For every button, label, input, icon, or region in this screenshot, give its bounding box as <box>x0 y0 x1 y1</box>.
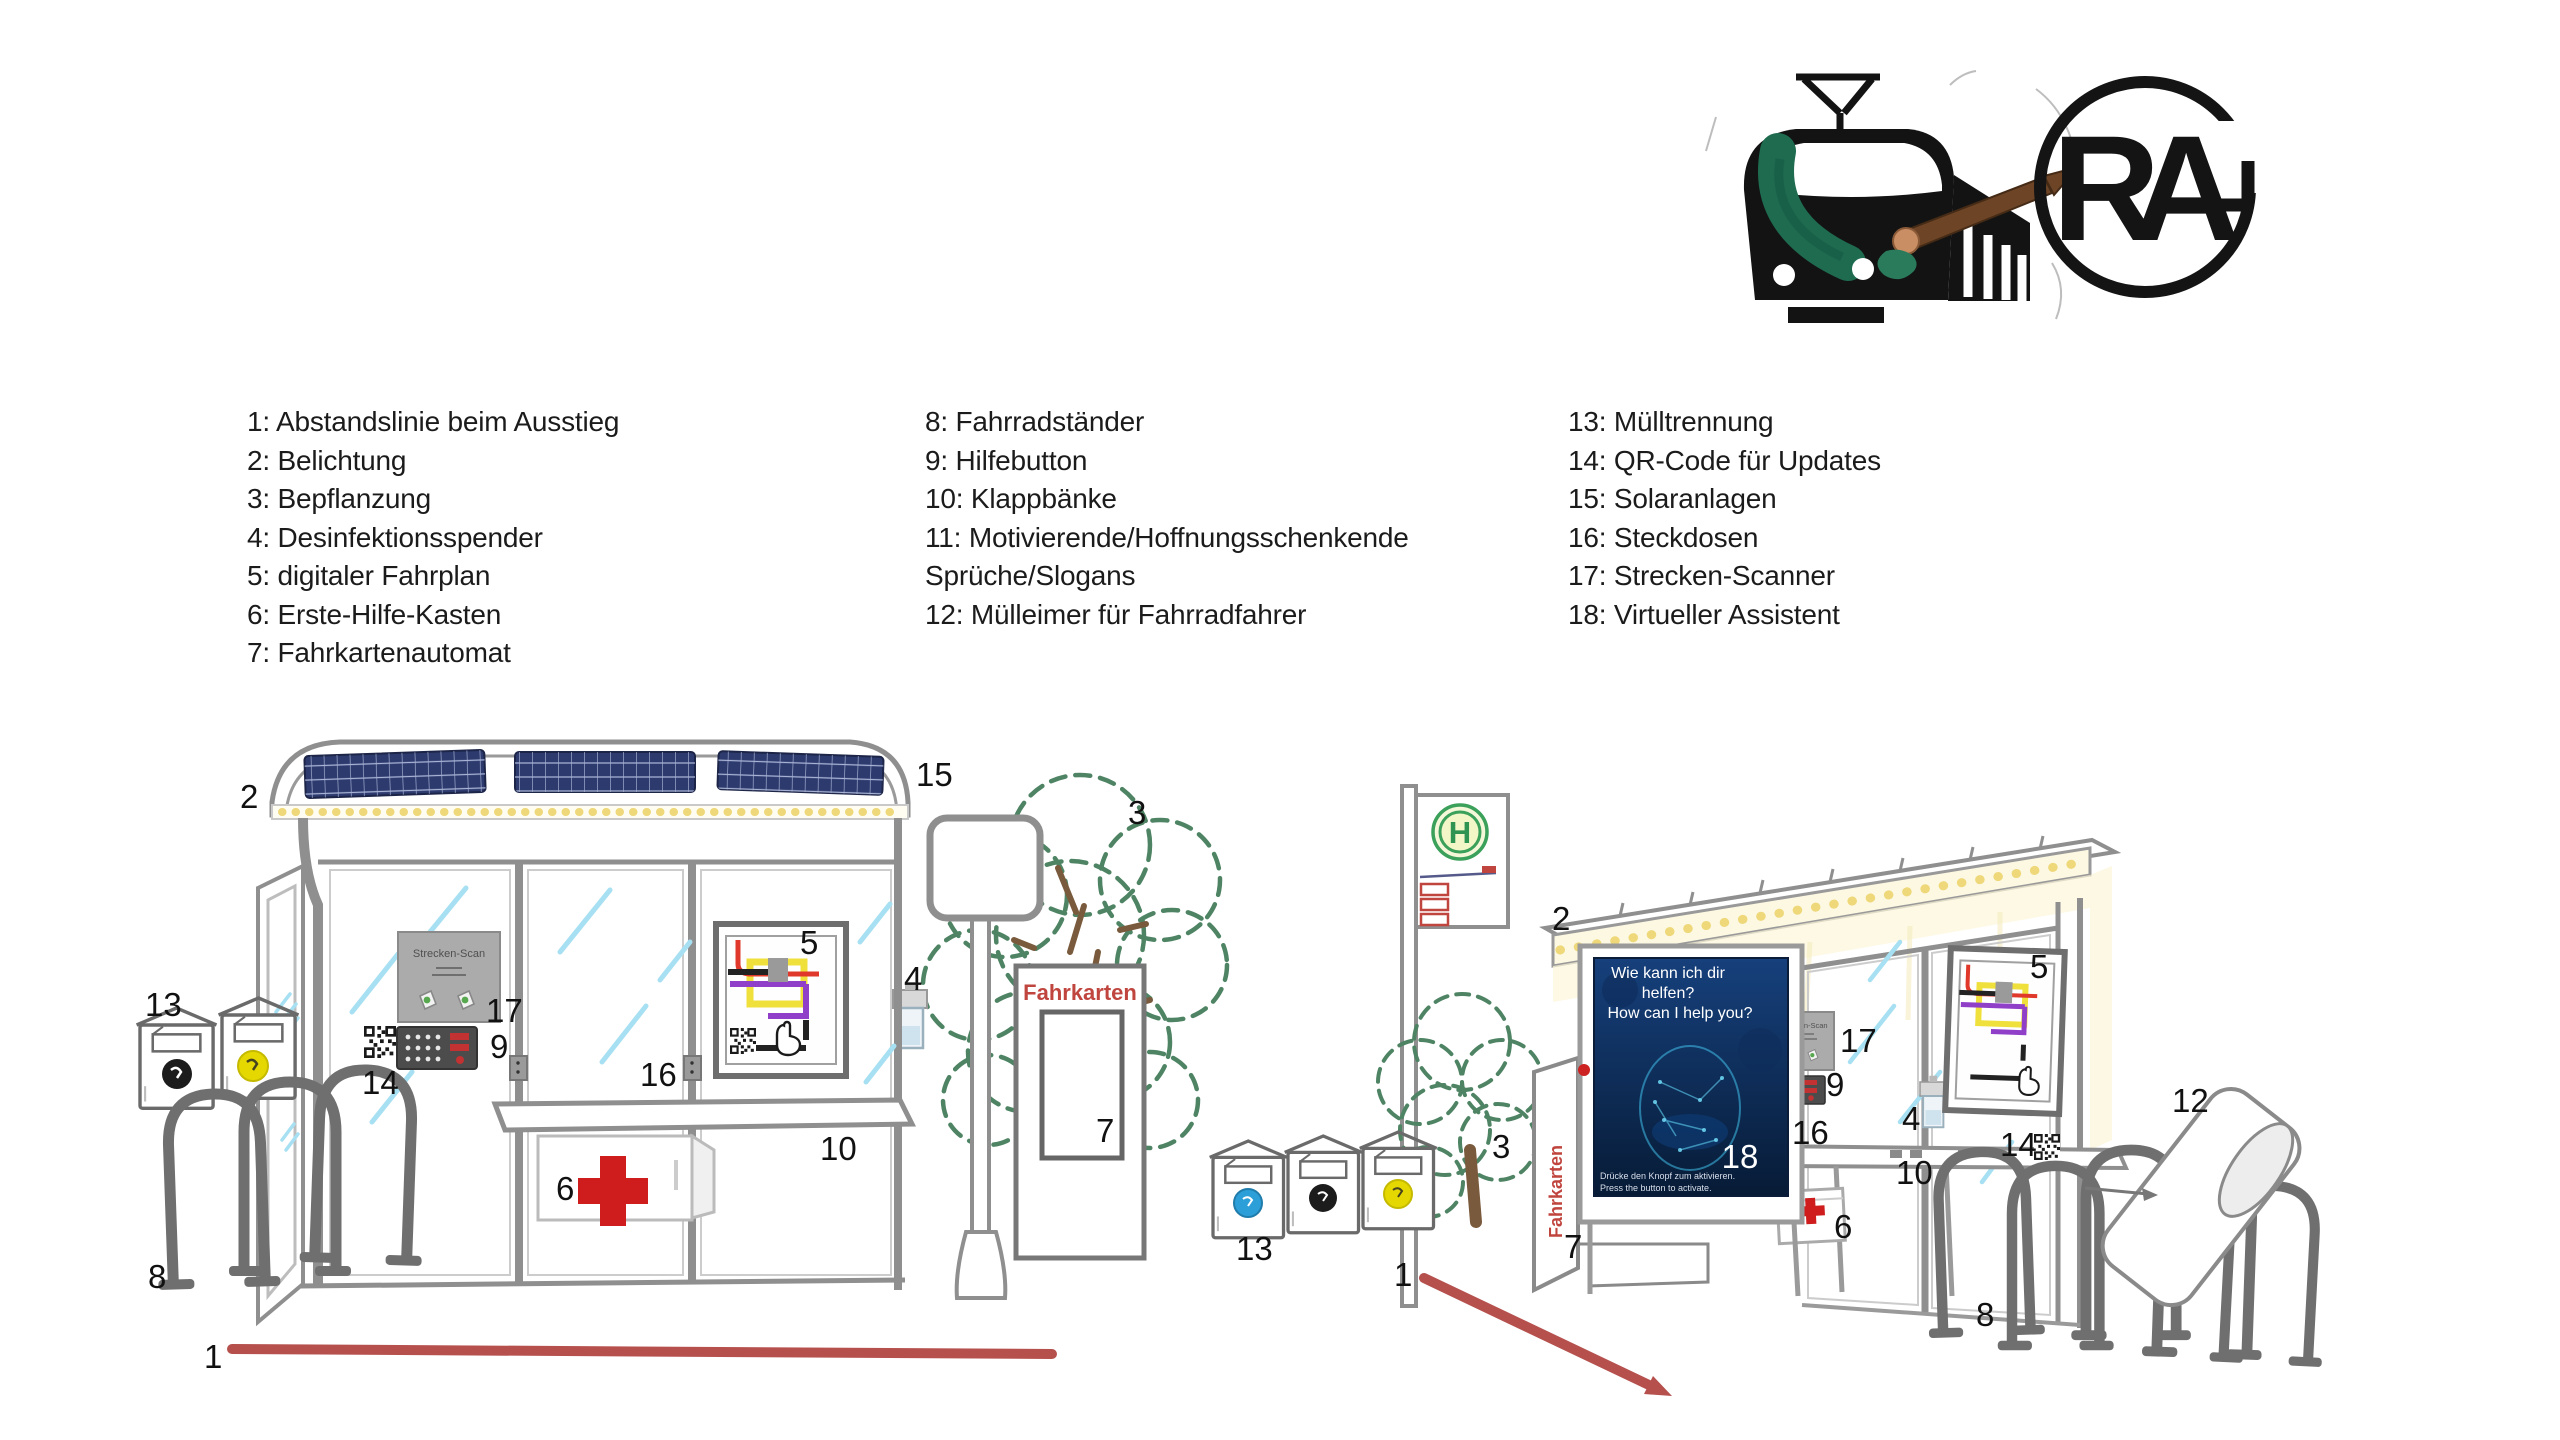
ticket-machine-left-label: Fahrkarten <box>1023 980 1137 1005</box>
digital-timetable-left <box>716 924 846 1076</box>
assistant-text-line2: helfen? <box>1642 985 1695 1002</box>
callout-bike-racks: 8 <box>1976 1296 1994 1333</box>
callout-planting: 3 <box>1492 1128 1510 1165</box>
callout-exit-arrow: 1 <box>1394 1256 1412 1293</box>
callout-bench: 10 <box>820 1130 857 1167</box>
callout-timetable: 5 <box>2030 948 2048 985</box>
callout-sockets: 16 <box>1792 1114 1829 1151</box>
callout-sockets: 16 <box>640 1056 677 1093</box>
callout-waste: 13 <box>145 986 182 1023</box>
help-button-icon <box>1578 1064 1590 1076</box>
right-scene: H <box>1210 786 2331 1396</box>
h-sign-letter: H <box>1449 815 1471 850</box>
callout-dispenser: 4 <box>904 960 922 997</box>
exit-distance-line-left <box>232 1349 1052 1354</box>
callout-help-button: 9 <box>490 1028 508 1065</box>
callout-lighting: 2 <box>240 778 258 815</box>
callout-planting: 3 <box>1128 794 1146 831</box>
callout-qr: 14 <box>362 1064 399 1101</box>
folding-bench-left <box>495 1100 912 1130</box>
callout-bike-bin: 12 <box>2172 1082 2209 1119</box>
callout-qr: 14 <box>2000 1126 2037 1163</box>
qr-code-updates-right-icon <box>2034 1134 2060 1160</box>
callout-ticket-machine: 7 <box>1564 1228 1582 1265</box>
callout-exit-line: 1 <box>204 1338 222 1375</box>
callout-assistant: 18 <box>1722 1138 1759 1175</box>
help-keypad-left <box>397 1027 477 1069</box>
assistant-text-line1: Wie kann ich dir <box>1611 965 1725 982</box>
callout-bike-racks: 8 <box>148 1258 166 1295</box>
qr-code-left-icon <box>364 1026 396 1058</box>
roof-light-strip-icon <box>272 805 908 819</box>
left-scene: Fahrkarten <box>137 742 1227 1375</box>
slide-canvas: 1: Abstandslinie beim Ausstieg 2: Belich… <box>0 0 2560 1440</box>
assistant-footer-de: Drücke den Knopf zum aktivieren. <box>1600 1171 1735 1181</box>
callout-lighting: 2 <box>1552 900 1570 937</box>
waste-bins-right <box>1210 1132 1437 1238</box>
callout-bench: 10 <box>1896 1154 1933 1191</box>
shelter-left: Strecken-Scan <box>258 742 912 1322</box>
callout-first-aid: 6 <box>556 1170 574 1207</box>
callout-ticket-machine: 7 <box>1096 1112 1114 1149</box>
assistant-text-line3: How can I help you? <box>1608 1005 1753 1022</box>
bus-stop-illustration: Fahrkarten <box>0 0 2560 1440</box>
assistant-footer-en: Press the button to activate. <box>1600 1183 1712 1193</box>
callout-dispenser: 4 <box>1902 1100 1920 1137</box>
callout-scanner: 17 <box>486 992 523 1029</box>
callout-scanner: 17 <box>1840 1022 1877 1059</box>
ticket-machine-left: Fahrkarten <box>1016 966 1144 1258</box>
callout-waste: 13 <box>1236 1230 1273 1267</box>
ticket-machine-right-label: Fahrkarten <box>1546 1145 1566 1238</box>
route-scanner-panel-left-label: Strecken-Scan <box>413 948 485 960</box>
callout-solar: 15 <box>916 756 953 793</box>
exit-distance-arrow <box>1424 1278 1672 1396</box>
callout-help-button: 9 <box>1826 1066 1844 1103</box>
callout-timetable: 5 <box>800 924 818 961</box>
solar-panels-icon <box>304 750 883 798</box>
callout-first-aid: 6 <box>1834 1208 1852 1245</box>
route-scanner-panel-left: Strecken-Scan <box>398 932 500 1022</box>
